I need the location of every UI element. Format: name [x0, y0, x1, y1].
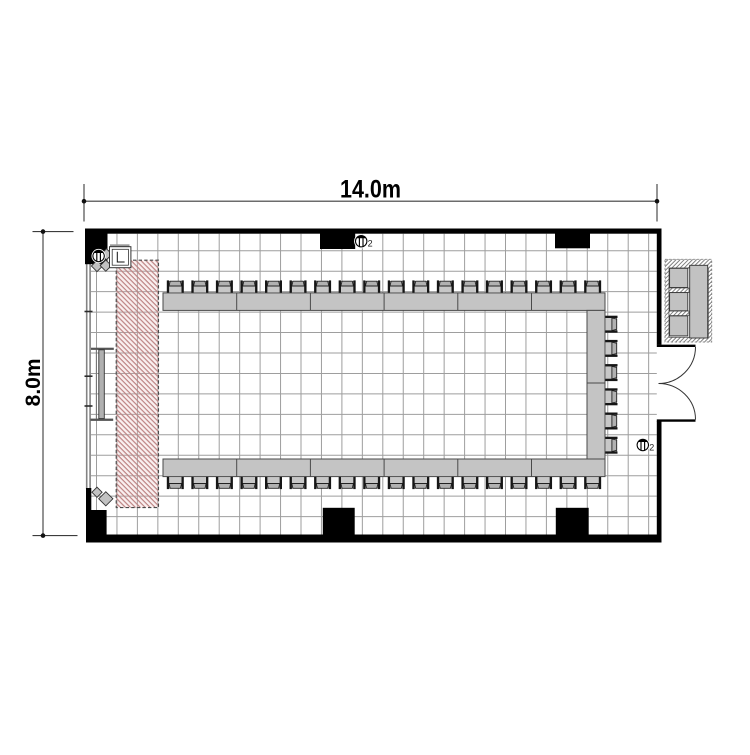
svg-text:8.0m: 8.0m — [22, 358, 45, 406]
svg-text:2: 2 — [649, 442, 654, 452]
svg-text:2: 2 — [368, 239, 373, 249]
svg-text:14.0m: 14.0m — [340, 176, 401, 204]
